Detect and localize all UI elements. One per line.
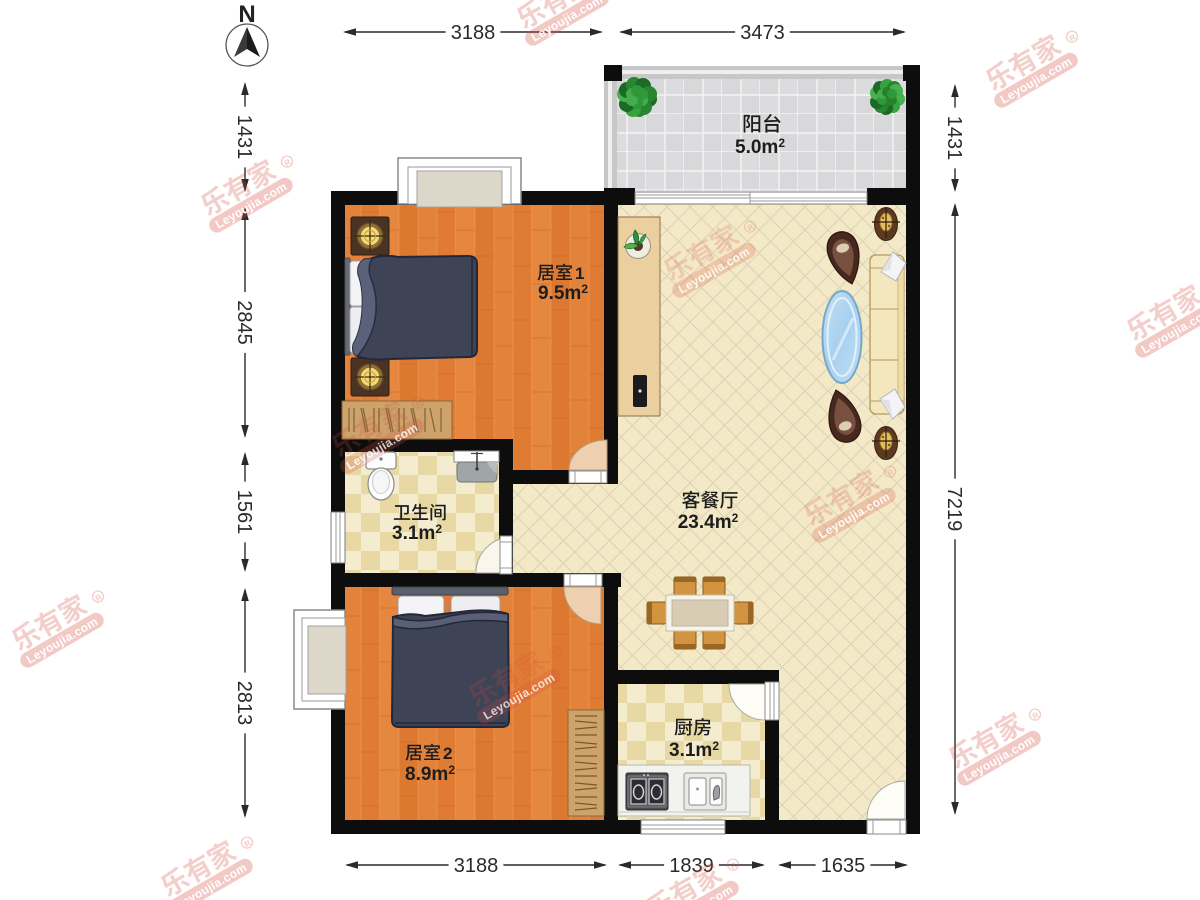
svg-text:3188: 3188: [451, 22, 496, 44]
svg-text:2: 2: [443, 744, 452, 763]
svg-text:1635: 1635: [821, 855, 866, 877]
svg-text:3473: 3473: [740, 22, 785, 44]
svg-text:3.1m2: 3.1m2: [392, 522, 442, 544]
svg-text:3.1m2: 3.1m2: [669, 739, 719, 761]
svg-text:3188: 3188: [454, 855, 499, 877]
svg-text:23.4m2: 23.4m2: [678, 511, 739, 533]
svg-text:2845: 2845: [233, 300, 255, 345]
svg-text:8.9m2: 8.9m2: [405, 763, 455, 785]
svg-text:1561: 1561: [233, 490, 255, 535]
svg-text:2813: 2813: [233, 681, 255, 726]
svg-text:7219: 7219: [943, 487, 965, 532]
svg-text:9.5m2: 9.5m2: [538, 282, 588, 304]
svg-text:1431: 1431: [233, 115, 255, 160]
svg-text:1431: 1431: [943, 116, 965, 161]
svg-text:1: 1: [575, 264, 584, 283]
svg-text:5.0m2: 5.0m2: [735, 136, 785, 158]
